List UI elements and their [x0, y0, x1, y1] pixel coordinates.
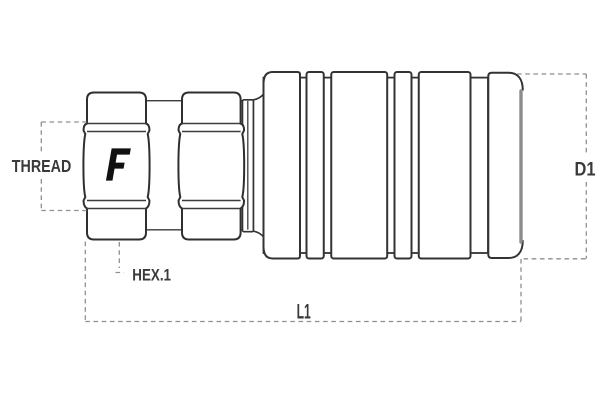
svg-text:HEX.1: HEX.1: [132, 266, 171, 284]
svg-text:THREAD: THREAD: [12, 156, 71, 176]
svg-text:L1: L1: [297, 300, 311, 323]
svg-text:D1: D1: [575, 159, 596, 180]
